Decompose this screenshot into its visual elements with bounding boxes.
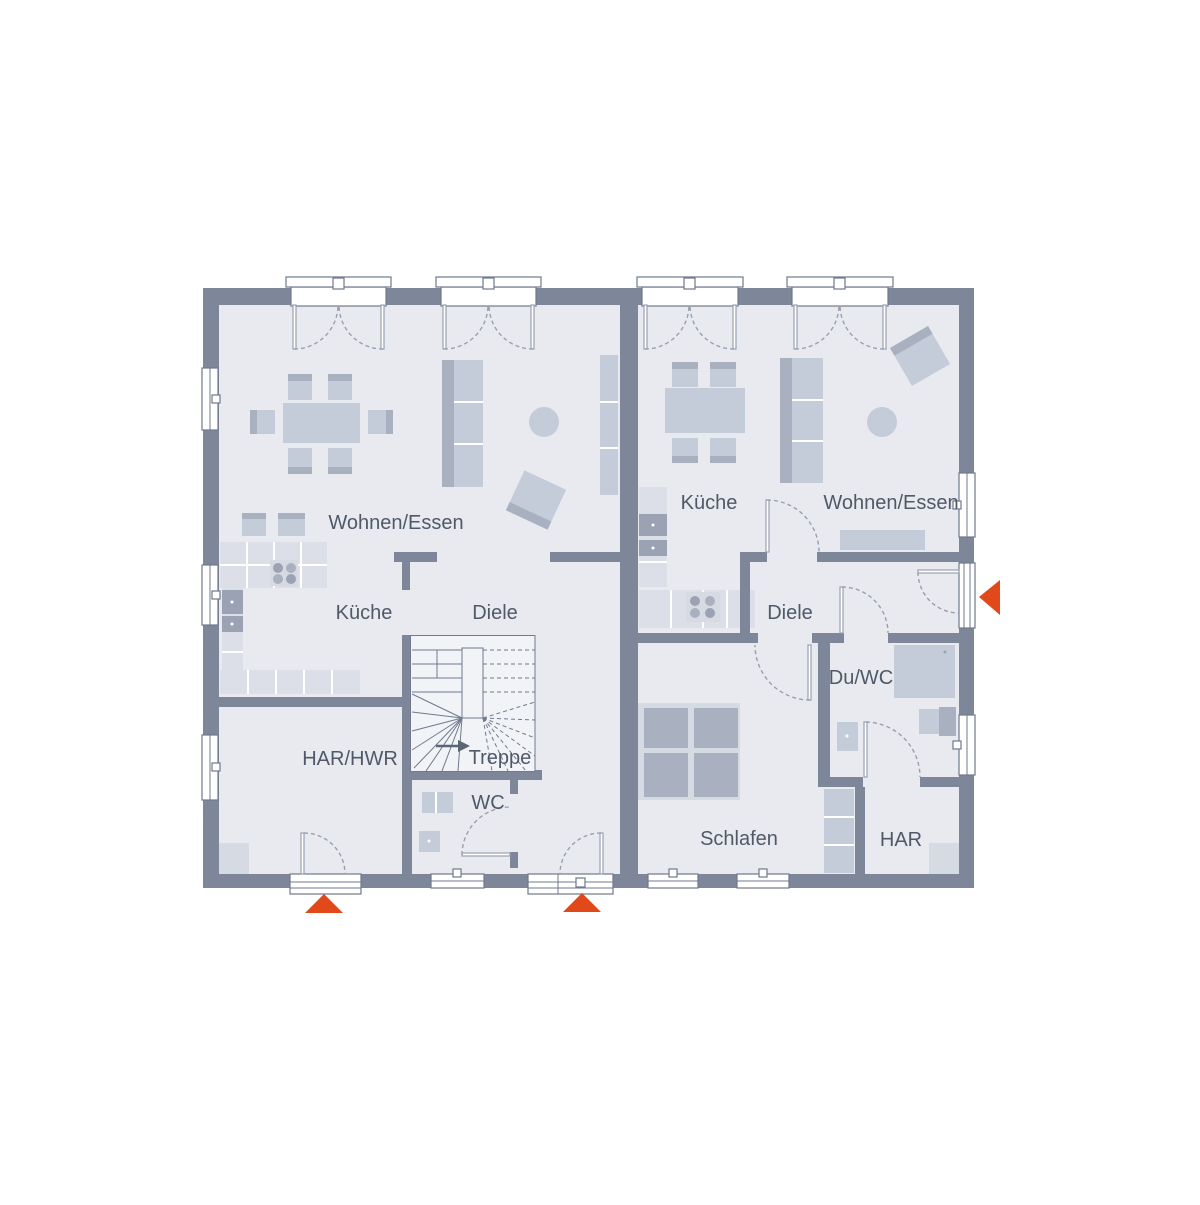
dining-chair	[368, 410, 393, 434]
room-label-left-living: Wohnen/Essen	[328, 512, 463, 534]
interior-wall	[855, 787, 865, 874]
interior-wall	[394, 552, 437, 562]
interior-wall	[620, 633, 758, 643]
dining-chair	[328, 448, 352, 474]
interior-wall	[818, 643, 830, 777]
oven	[222, 590, 243, 614]
sink-appliance	[639, 540, 667, 556]
window	[202, 368, 220, 430]
room-label-left-kitchen: Küche	[336, 602, 393, 624]
bar-stool	[242, 513, 266, 536]
window	[202, 565, 220, 625]
interior-wall	[920, 777, 959, 787]
dining-table	[283, 403, 360, 443]
dining-chair	[672, 438, 698, 463]
floor-plan-page: Wohnen/Essen Küche Diele HAR/HWR Treppe …	[0, 0, 1200, 1200]
window	[202, 735, 220, 800]
interior-wall	[402, 552, 410, 590]
dining-chair	[710, 362, 736, 387]
interior-wall	[217, 697, 412, 707]
shower	[894, 645, 955, 698]
sofa	[780, 358, 823, 483]
room-label-right-hall: Diele	[767, 602, 813, 624]
room-label-left-hall: Diele	[472, 602, 518, 624]
room-label-right-storage: HAR	[880, 829, 922, 851]
interior-wall	[812, 633, 844, 643]
interior-wall	[818, 777, 863, 787]
dining-chair	[288, 448, 312, 474]
entrance-triangle-icon	[563, 893, 601, 912]
wc-washbasin	[422, 792, 453, 813]
sideboard	[840, 530, 925, 550]
toilet	[919, 707, 956, 736]
double-bed	[638, 703, 740, 800]
room-label-right-showerwc: Du/WC	[829, 667, 893, 689]
washing-machine	[219, 843, 249, 874]
bar-stool	[278, 513, 305, 536]
interior-wall	[510, 778, 518, 794]
round-rug	[529, 407, 559, 437]
party-wall	[620, 288, 638, 888]
wardrobe	[824, 789, 854, 873]
dining-chair	[328, 374, 352, 400]
sink-appliance	[222, 616, 243, 632]
interior-wall	[817, 552, 959, 562]
round-rug	[867, 407, 897, 437]
cooktop	[270, 560, 298, 586]
utility-cabinet	[929, 843, 959, 874]
sofa	[442, 360, 483, 487]
left-unit-floor	[217, 305, 620, 874]
interior-wall	[888, 633, 959, 643]
washbasin	[837, 722, 858, 751]
dining-chair	[250, 410, 275, 434]
cooktop	[686, 592, 720, 622]
wc-toilet	[419, 831, 440, 852]
dining-chair	[710, 438, 736, 463]
interior-wall	[740, 552, 750, 637]
entrance-triangle-icon	[979, 580, 1000, 615]
room-label-left-stairs: Treppe	[469, 747, 532, 769]
room-label-right-kitchen: Küche	[681, 492, 738, 514]
room-label-left-wc: WC	[471, 792, 504, 814]
dining-chair	[288, 374, 312, 400]
oven	[639, 514, 667, 536]
entrance-triangle-icon	[305, 894, 343, 913]
room-label-right-bedroom: Schlafen	[700, 828, 778, 850]
sideboard	[600, 355, 618, 495]
floor-plan-drawing: Wohnen/Essen Küche Diele HAR/HWR Treppe …	[0, 0, 1200, 1200]
dining-chair	[672, 362, 698, 387]
room-label-right-living: Wohnen/Essen	[823, 492, 958, 514]
dining-table	[665, 388, 745, 433]
room-label-left-utility: HAR/HWR	[302, 748, 398, 770]
interior-wall	[550, 552, 620, 562]
interior-wall	[510, 852, 518, 868]
